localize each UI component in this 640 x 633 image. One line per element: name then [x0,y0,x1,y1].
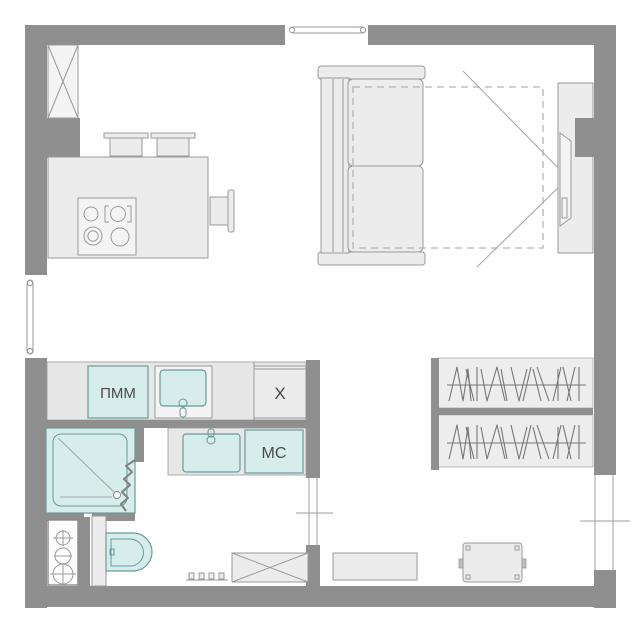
window-left-hinge-bottom [27,348,32,353]
shower-wall-stub [135,428,144,462]
sofa-cushion-top [348,79,423,166]
sofa-cushion-bottom [348,166,423,252]
shower-cabin [46,428,135,513]
window-top-hinge-right [360,27,365,32]
window-top [289,27,365,33]
utility-meter-box [48,520,78,585]
bench [333,553,417,580]
kitchen-sink-basin [160,370,206,406]
window-left [27,280,33,354]
window-left-frame [27,280,33,354]
window-top-hinge-left [289,27,294,32]
sofa-bed-group [318,66,425,265]
bar-stool-2-seat [157,138,189,156]
sofa-armrest-top [318,66,425,79]
vent-shaft [47,45,80,158]
tv-group [558,83,594,253]
side-chair-back [228,190,234,232]
wall-left-lower-segment [25,358,47,608]
stove-4-burners [78,198,136,255]
wardrobe [431,358,593,470]
radiator-segment-3 [209,573,214,579]
dishwasher-label: ПММ [100,385,136,402]
bar-stool-1-back [104,133,148,138]
shower-drain [114,492,121,499]
wardrobe-lower-section [438,415,593,467]
fridge-label: X [274,384,285,403]
wardrobe-divider [431,408,593,415]
pouf-body [463,543,522,582]
bathroom-sink-basin [183,434,240,472]
wall-bottom [25,586,616,607]
window-top-frame [290,27,365,33]
wall-right-upper-segment [594,25,616,475]
stove-body [78,198,136,255]
wall-notch-overlay [575,118,594,157]
floor-plan: ПММ X МС [0,0,640,633]
kitchen-sink [155,366,212,418]
vent-shaft-wall-block [47,118,80,158]
bathroom-sink-row: МС [168,428,306,475]
sofa-armrest-bottom [318,252,425,265]
window-left-hinge-top [27,280,32,285]
sofa-backrest [321,78,349,253]
washing-machine-label: МС [262,445,287,462]
wall-left-upper-segment [25,25,47,275]
toilet-partition [78,517,90,587]
toilet-tank [92,516,106,586]
bathroom-wall-top [47,420,306,428]
wall-top-right-segment [368,25,616,45]
fridge: X [254,366,306,418]
radiator-segment-1 [189,573,194,579]
bathroom-wall-right-upper [306,360,320,478]
shower-outer [46,428,135,513]
crossed-storage-box [232,553,308,582]
wall-top-left-segment [25,25,285,45]
radiator-segment-4 [219,573,224,579]
wardrobe-upper-section [438,358,593,408]
pouf-table [459,543,526,582]
bar-stool-2-back [151,133,195,138]
kitchen-counter-group: ПММ X [47,362,306,420]
side-chair-seat [210,197,228,225]
radiator-segment-2 [199,573,204,579]
bar-stool-1-seat [110,138,142,156]
